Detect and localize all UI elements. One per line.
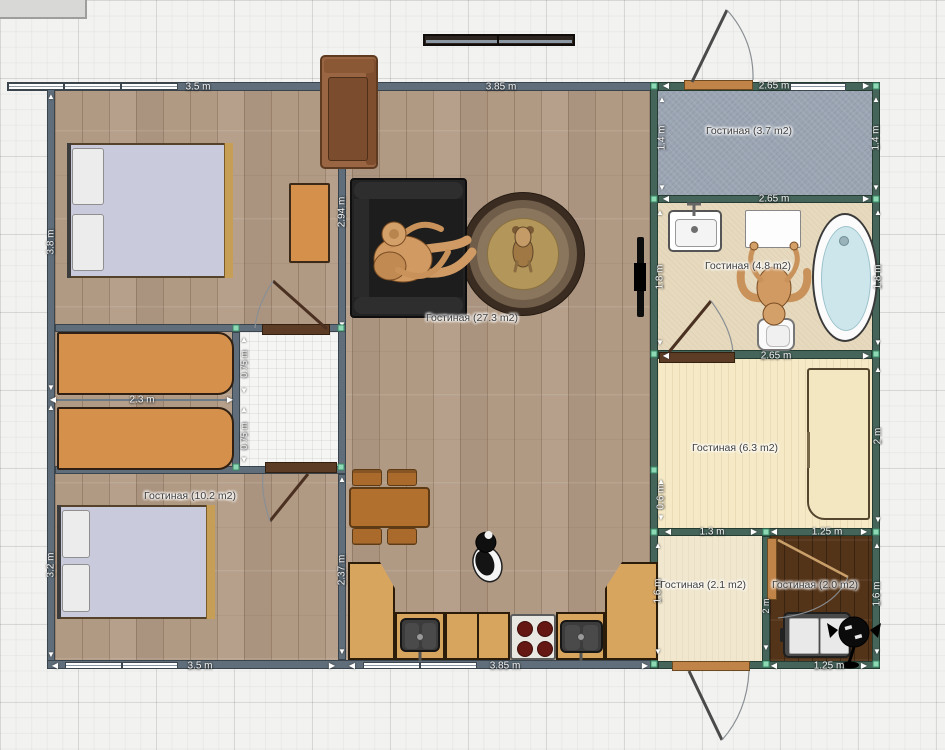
corner-marker[interactable] bbox=[873, 351, 880, 358]
arrow-up-icon: ▲ bbox=[338, 476, 346, 484]
arrow-left-icon: ◀ bbox=[52, 662, 58, 670]
dim-dress-bottom-a: 1.3 m bbox=[699, 527, 724, 538]
arrow-down-icon: ▼ bbox=[47, 651, 55, 659]
arrow-left-icon: ◀ bbox=[665, 528, 671, 536]
dim-entry-top: 2.65 m bbox=[759, 81, 790, 92]
corner-marker[interactable] bbox=[651, 351, 658, 358]
dim-hall-left: 1.6 m bbox=[653, 578, 664, 603]
dim-pantry-door: 2 m bbox=[761, 598, 771, 613]
corner-marker[interactable] bbox=[763, 661, 770, 668]
dog-on-rug[interactable] bbox=[512, 226, 534, 271]
corner-marker[interactable] bbox=[233, 325, 240, 332]
dim-bedroom-inner: 2.94 m bbox=[337, 197, 348, 228]
dim-corridor-b: 0.75 m bbox=[239, 422, 249, 450]
corner-marker[interactable] bbox=[873, 196, 880, 203]
door-front[interactable] bbox=[689, 671, 749, 740]
arrow-right-icon: ▶ bbox=[863, 195, 869, 203]
dim-entry-left: 1.4 m bbox=[657, 125, 668, 150]
door-bedroom1[interactable] bbox=[255, 281, 327, 329]
arrow-up-icon: ▲ bbox=[240, 336, 248, 344]
room-label-bedroom-lower: Гостиная (10.2 m2) bbox=[144, 490, 236, 502]
arrow-up-icon: ▲ bbox=[874, 366, 882, 374]
dim-left-lower: 3.2 m bbox=[46, 552, 57, 577]
arrow-left-icon: ◀ bbox=[663, 82, 669, 90]
arrow-down-icon: ▼ bbox=[657, 514, 665, 522]
arrow-down-icon: ▼ bbox=[338, 648, 346, 656]
arrow-right-icon: ▶ bbox=[863, 82, 869, 90]
corner-marker[interactable] bbox=[873, 661, 880, 668]
door-bedroom2[interactable] bbox=[263, 474, 308, 521]
corner-marker[interactable] bbox=[651, 467, 658, 474]
dim-bottom-bedroom: 3.5 m bbox=[187, 661, 212, 672]
arrow-left-icon: ◀ bbox=[663, 352, 669, 360]
dim-bath-left: 1.8 m bbox=[655, 264, 666, 289]
dim-bottom-kitchen: 3.85 m bbox=[490, 661, 521, 672]
arrow-left-icon: ◀ bbox=[349, 662, 355, 670]
arrow-up-icon: ▲ bbox=[240, 406, 248, 414]
dim-top-bedroom: 3.5 m bbox=[185, 82, 210, 93]
arrow-down-icon: ▼ bbox=[240, 456, 248, 464]
arrow-down-icon: ▼ bbox=[874, 339, 882, 347]
arrow-down-icon: ▼ bbox=[762, 644, 770, 652]
dim-pantry-bottom: 1.25 m bbox=[814, 661, 845, 672]
arrow-down-icon: ▼ bbox=[658, 184, 666, 192]
room-label-entry: Гостиная (3.7 m2) bbox=[706, 125, 792, 137]
arrow-up-icon: ▲ bbox=[873, 542, 881, 550]
corner-marker[interactable] bbox=[338, 464, 345, 471]
arrow-down-icon: ▼ bbox=[656, 339, 664, 347]
door-bathroom[interactable] bbox=[669, 301, 733, 352]
arrow-up-icon: ▲ bbox=[47, 93, 55, 101]
room-label-living: Гостиная (27.3 m2) bbox=[426, 312, 518, 324]
arrow-left-icon: ◀ bbox=[663, 195, 669, 203]
arrow-down-icon: ▼ bbox=[874, 516, 882, 524]
arrow-up-icon: ▲ bbox=[874, 209, 882, 217]
dim-left-upper: 3.8 m bbox=[46, 229, 57, 254]
corner-marker[interactable] bbox=[338, 325, 345, 332]
arrow-right-icon: ▶ bbox=[863, 352, 869, 360]
dog-near-kitchen[interactable] bbox=[464, 529, 509, 585]
dim-entry-bottom: 2.65 m bbox=[759, 194, 790, 205]
arrow-right-icon: ▶ bbox=[751, 528, 757, 536]
dim-dress-bottom-b: 1.25 m bbox=[812, 527, 843, 538]
dim-dress-left: 0.6 m bbox=[656, 484, 667, 509]
corner-marker[interactable] bbox=[873, 529, 880, 536]
arrow-up-icon: ▲ bbox=[657, 478, 665, 486]
arrow-left-icon: ◀ bbox=[771, 528, 777, 536]
arrow-down-icon: ▼ bbox=[654, 648, 662, 656]
dim-kitchen-inner: 2.37 m bbox=[337, 555, 348, 586]
corner-marker[interactable] bbox=[651, 196, 658, 203]
dim-bath-right: 1.8 m bbox=[873, 264, 884, 289]
dim-pantry-right: 1.6 m bbox=[872, 581, 883, 606]
arrow-down-icon: ▼ bbox=[47, 384, 55, 392]
room-label-bathroom: Гостиная (4.8 m2) bbox=[705, 260, 791, 272]
arrow-left-icon: ◀ bbox=[50, 396, 56, 404]
arrow-up-icon: ▲ bbox=[654, 542, 662, 550]
corner-marker[interactable] bbox=[651, 529, 658, 536]
corner-marker[interactable] bbox=[763, 529, 770, 536]
room-label-hall: Гостиная (2.1 m2) bbox=[660, 579, 746, 591]
dim-bath-bottom: 2.65 m bbox=[761, 351, 792, 362]
arrow-up-icon: ▲ bbox=[656, 209, 664, 217]
arrow-up-icon: ▲ bbox=[47, 404, 55, 412]
dim-dress-right: 2 m bbox=[873, 428, 884, 445]
person-on-toilet[interactable] bbox=[741, 242, 808, 325]
dim-corridor-a: 0.75 m bbox=[239, 350, 249, 378]
corner-marker[interactable] bbox=[233, 464, 240, 471]
arrow-down-icon: ▼ bbox=[873, 648, 881, 656]
arrow-left-icon: ◀ bbox=[771, 662, 777, 670]
arrow-right-icon: ▶ bbox=[861, 662, 867, 670]
room-label-dressing: Гостиная (6.3 m2) bbox=[692, 442, 778, 454]
arrow-down-icon: ▼ bbox=[872, 184, 880, 192]
corner-marker[interactable] bbox=[651, 83, 658, 90]
arrow-right-icon: ▶ bbox=[329, 662, 335, 670]
person-on-sofa[interactable] bbox=[374, 222, 472, 282]
corner-marker[interactable] bbox=[873, 83, 880, 90]
arrow-up-icon: ▲ bbox=[658, 96, 666, 104]
arrow-up-icon: ▲ bbox=[872, 96, 880, 104]
arrow-right-icon: ▶ bbox=[227, 396, 233, 404]
door-entrance[interactable] bbox=[692, 10, 753, 82]
dim-entry-right: 1.4 m bbox=[871, 125, 882, 150]
corner-marker[interactable] bbox=[651, 661, 658, 668]
arrow-right-icon: ▶ bbox=[861, 528, 867, 536]
dim-wardrobe: 2.3 m bbox=[129, 395, 154, 406]
room-label-pantry: Гостиная (2.0 m2) bbox=[772, 579, 858, 591]
arrow-down-icon: ▼ bbox=[240, 387, 248, 395]
arrow-right-icon: ▶ bbox=[642, 662, 648, 670]
floor-plan-canvas[interactable]: Гостиная (27.3 m2) Гостиная (10.2 m2) Го… bbox=[0, 0, 945, 750]
dim-top-living: 3.85 m bbox=[486, 82, 517, 93]
